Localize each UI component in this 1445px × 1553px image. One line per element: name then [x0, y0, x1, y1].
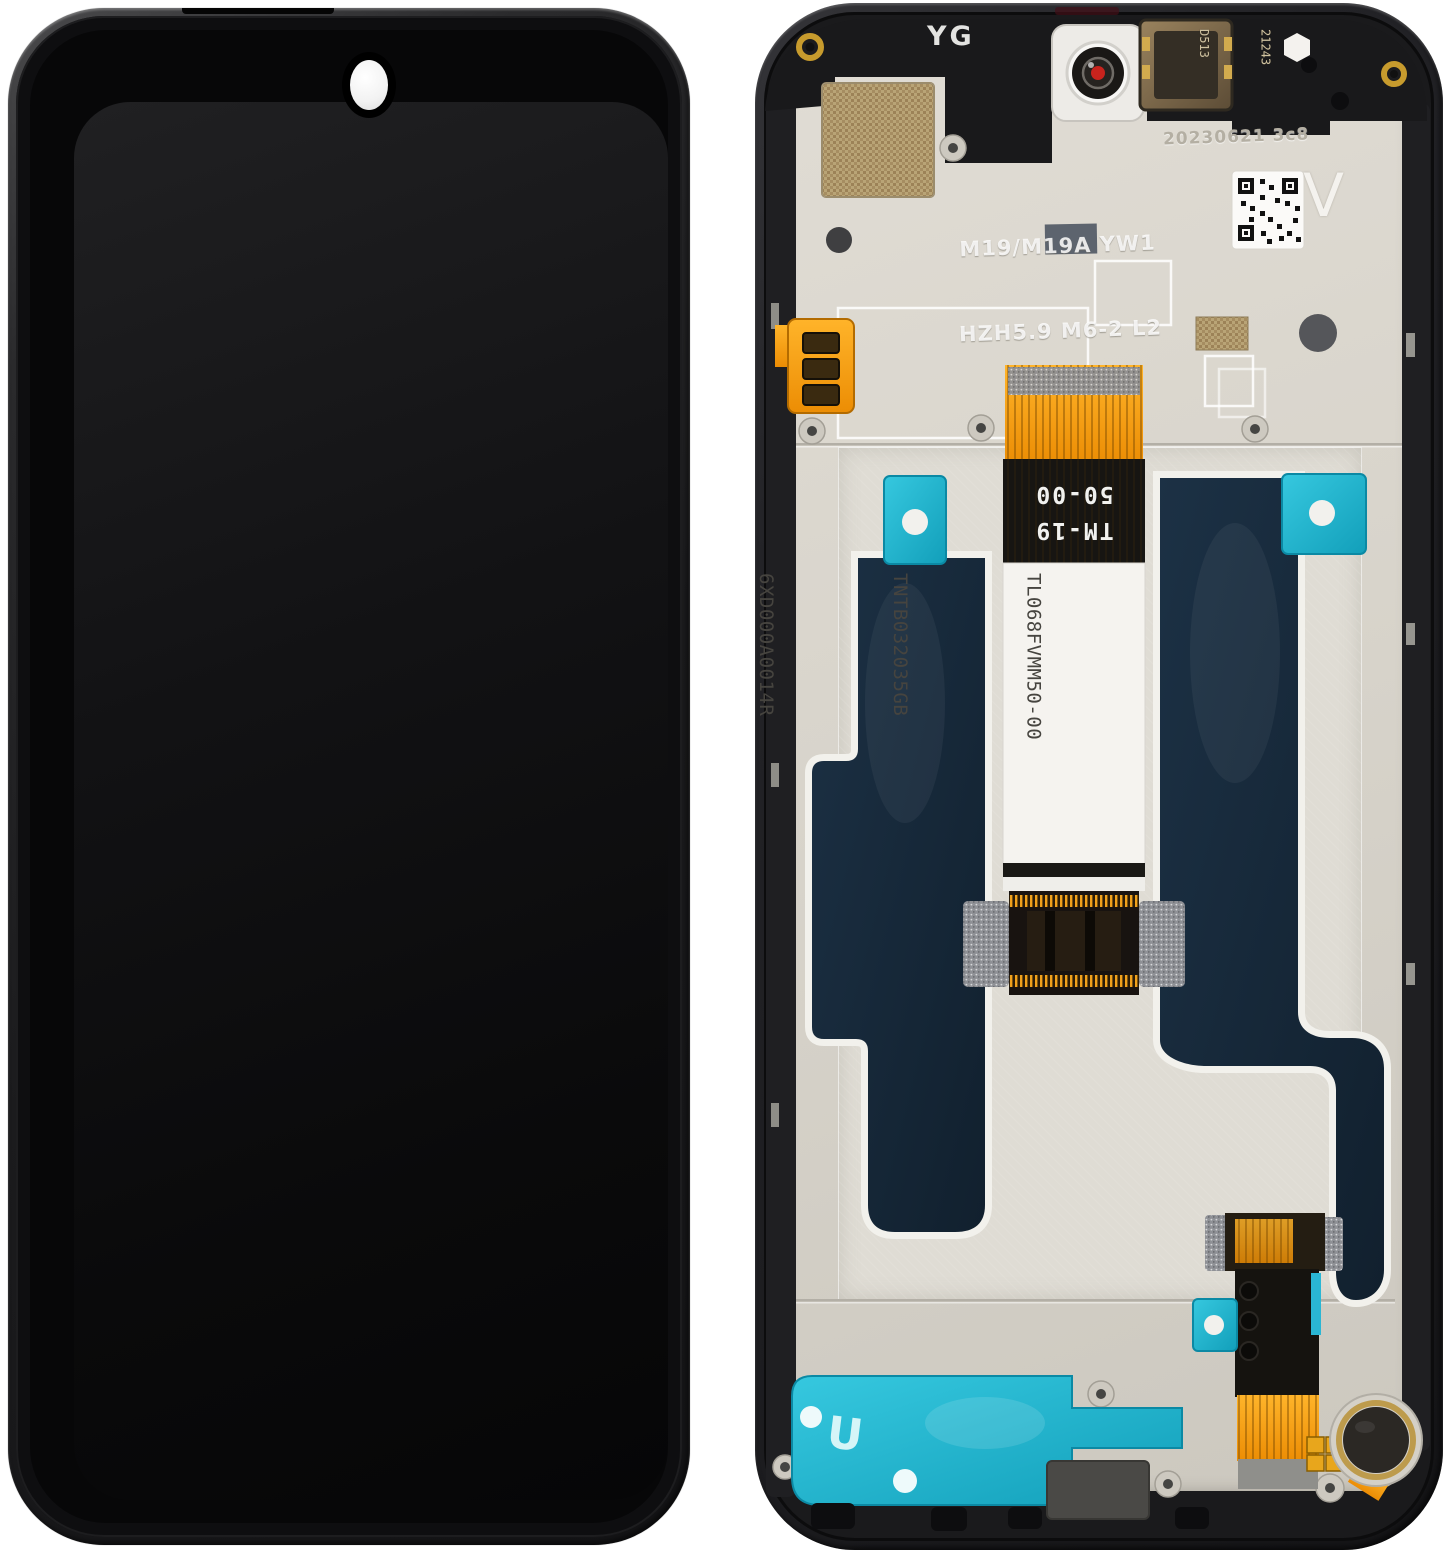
rubber-plug-dot [826, 227, 852, 253]
product-photo-phone-display-assembly: YG D513 21243 20230621 3c8 M19/M19A YW1 … [0, 0, 1445, 1553]
etched-model-text: M19/M19A YW1 HZH5.9 M6-2 L2 [947, 171, 1171, 405]
gold-screw-top-right [1381, 61, 1407, 87]
speaker-code-text: D513 21243 [1153, 29, 1316, 107]
etched-model-line1: M19/M19A YW1 [949, 228, 1166, 264]
etched-model-line2: HZH5.9 M6-2 L2 [952, 313, 1169, 349]
pull-tab-right [1282, 474, 1366, 554]
camera-lens-red-dot [1091, 66, 1105, 80]
flex-label-line1: TL068FVMM50-00 [1011, 573, 1056, 865]
pull-tab-left [884, 476, 946, 564]
punch-hole-camera-ring [342, 52, 396, 118]
front-display-assembly [8, 8, 690, 1545]
flex-label-text: TL068FVMM50-00 TNTB032035GB 6XD000A0014R [1003, 569, 1145, 865]
adhesive-glyph-u: U [824, 1407, 866, 1462]
frame-code-text: YG [927, 21, 975, 52]
antenna-mesh-pad [822, 83, 934, 197]
punch-hole-camera [350, 60, 388, 110]
screen-glass [30, 30, 668, 1523]
flex-print-text: TM-19 50-00 [1003, 459, 1145, 565]
flex-board-connector [963, 891, 1185, 995]
grommet-dark-circle [1299, 314, 1337, 352]
adhesive-strip-right [1160, 478, 1384, 1300]
earpiece-slit [182, 8, 334, 14]
lcd-panel-off [74, 102, 668, 1500]
mesh-pad-small [1196, 317, 1248, 350]
flex-print-line1: TM-19 [1034, 517, 1113, 543]
qr-code-label [1232, 171, 1304, 249]
flex-print-line2: 50-00 [1034, 481, 1113, 507]
speaker-code-line1: D513 [1194, 29, 1214, 107]
gold-screw-top-left [796, 33, 824, 61]
qr-side-letter: V [1303, 161, 1344, 231]
pull-tab-sub-flex [1193, 1299, 1237, 1351]
speaker-code-line2: 21243 [1255, 29, 1275, 107]
flex-label-line3: 6XD000A0014R [743, 573, 788, 865]
back-frame-assembly: YG D513 21243 20230621 3c8 M19/M19A YW1 … [755, 3, 1443, 1550]
vibration-motor [1330, 1394, 1422, 1486]
flex-label-line2: TNTB032035GB [877, 573, 922, 865]
front-camera-module [1052, 25, 1144, 121]
